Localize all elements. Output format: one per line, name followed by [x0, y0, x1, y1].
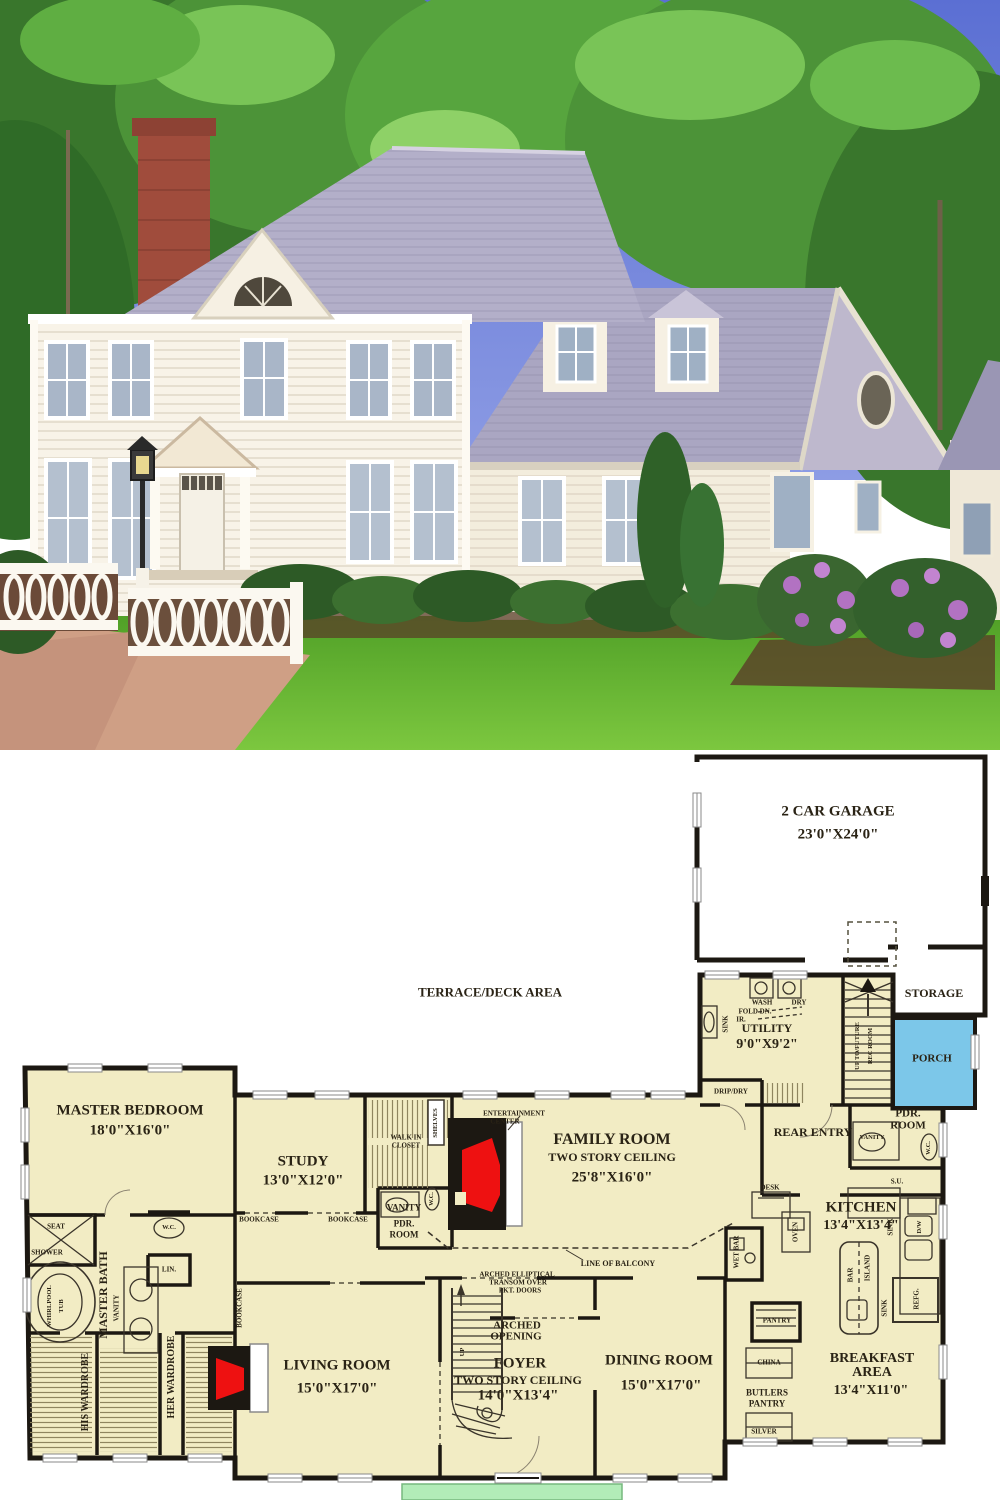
wet-bar-label: WET BAR [734, 1236, 741, 1269]
fold-dn-label: FOLD DN. [738, 1009, 771, 1016]
family-room-dims: 25'8"X16'0" [572, 1171, 653, 1186]
transom-label-1: ARCHED ELLIPTICAL [479, 1272, 554, 1279]
gable-oval-window [859, 373, 893, 427]
entertainment-label: ENTERTAINMENT [483, 1111, 545, 1118]
kitchen-sink-label: SINK [888, 1218, 895, 1235]
pdr-room-label-2: ROOM [390, 1231, 419, 1240]
dining-room-dims: 15'0"X17'0" [621, 1379, 702, 1394]
storage-label: STORAGE [905, 987, 963, 999]
window [772, 474, 812, 550]
utility-sink-label: SINK [723, 1015, 730, 1032]
whirlpool-label: WHIRLPOOL [47, 1285, 54, 1327]
entertainment-center-label: CENTER [490, 1119, 519, 1126]
house-photo [0, 0, 1000, 750]
breakfast-dims: 13'4"X11'0" [834, 1384, 909, 1398]
foyer-dims: 14'0"X13'4" [478, 1389, 559, 1404]
transom-label-3: PKT. DOORS [499, 1288, 541, 1295]
terrace-label: TERRACE/DECK AREA [418, 986, 562, 999]
his-wardrobe-label: HIS WARDROBE [81, 1353, 91, 1431]
house-photo-drawing [0, 0, 1000, 750]
garage-label: 2 CAR GARAGE [781, 805, 894, 820]
silver-label: SILVER [751, 1429, 776, 1436]
window [856, 482, 880, 532]
su-label: S.U. [891, 1179, 903, 1186]
seat-label: SEAT [47, 1224, 65, 1231]
bookcase-label: BOOKCASE [328, 1217, 368, 1224]
linen-label: LIN. [162, 1267, 176, 1274]
study-label: STUDY [278, 1155, 329, 1170]
utility-dims: 9'0"X9'2" [736, 1038, 797, 1052]
island-sink-label: SINK [882, 1299, 889, 1316]
front-stoop [402, 1484, 622, 1500]
garage-side-door [981, 876, 989, 906]
up-to-future-label: UP TO/FUTURE [855, 1022, 862, 1070]
pdr-right-label-2: ROOM [890, 1121, 925, 1132]
rear-entry-label: REAR ENTRY [774, 1126, 853, 1138]
pdr-wc-label: W.C. [429, 1192, 436, 1206]
kitchen-label: KITCHEN [826, 1201, 897, 1216]
master-bedroom-label: MASTER BEDROOM [56, 1104, 203, 1119]
china-label: CHINA [757, 1360, 780, 1367]
dining-room-label: DINING ROOM [605, 1354, 713, 1369]
pantry-label: PANTRY [763, 1318, 791, 1325]
dry-label: DRY [792, 1000, 807, 1007]
bookcase-label: BOOKCASE [237, 1288, 244, 1328]
bar-label: BAR [848, 1268, 855, 1283]
pin-image: 2 CAR GARAGE 23'0"X24'0" TERRACE/DECK AR… [0, 0, 1000, 1500]
breakfast-label-1: BREAKFAST [830, 1352, 915, 1366]
family-room-label: FAMILY ROOM [553, 1132, 670, 1148]
pdr-right-label-1: PDR. [895, 1109, 920, 1120]
transom-label-2: TRANSOM OVER [489, 1280, 547, 1287]
fence-post [290, 582, 303, 664]
dw-label: D/W [917, 1221, 924, 1234]
mb-wc-label: W.C. [162, 1225, 176, 1232]
desk-label: DESK [760, 1185, 779, 1192]
study-dims: 13'0"X12'0" [263, 1174, 344, 1189]
oven-label: OVEN [793, 1222, 800, 1242]
wash-label: WASH [752, 1000, 773, 1007]
garage-dims: 23'0"X24'0" [798, 828, 879, 843]
front-door-plan [495, 1473, 541, 1483]
foyer-label: FOYER [494, 1357, 547, 1372]
pdr-vanity-label: VANITY [387, 1204, 421, 1213]
bookcase-label: BOOKCASE [239, 1217, 279, 1224]
master-bath-label: MASTER BATH [97, 1251, 109, 1338]
living-room-label: LIVING ROOM [283, 1359, 390, 1374]
pdr-right-vanity-label: VANITY [860, 1135, 885, 1142]
arched-opening-label-2: OPENING [490, 1332, 541, 1343]
living-room-fireplace [208, 1344, 268, 1412]
up-label: UP [460, 1348, 467, 1357]
window [962, 502, 992, 556]
balcony-label: LINE OF BALCONY [581, 1260, 655, 1268]
front-step [146, 570, 258, 580]
floor-plan: 2 CAR GARAGE 23'0"X24'0" TERRACE/DECK AR… [0, 750, 1000, 1500]
butlers-pantry-label: PANTRY [749, 1400, 786, 1409]
porch-label: PORCH [912, 1054, 952, 1065]
shelves-label: SHELVES [433, 1108, 440, 1137]
butlers-label: BUTLERS [746, 1389, 788, 1398]
utility-label: UTILITY [742, 1022, 793, 1034]
mb-vanity-label: VANITY [114, 1295, 121, 1322]
foyer-note: TWO STORY CEILING [454, 1374, 582, 1386]
pdr-room-label-1: PDR. [394, 1220, 415, 1229]
island-label: ISLAND [865, 1255, 872, 1281]
refg-label: REFG. [914, 1288, 921, 1309]
pdr-right-wc-label: W.C. [926, 1141, 933, 1155]
tub-label: TUB [59, 1299, 66, 1312]
drip-dry-label: DRIP/DRY [714, 1089, 748, 1096]
family-room-fireplace [448, 1118, 522, 1230]
breakfast-label-2: AREA [852, 1366, 892, 1380]
shower-label: SHOWER [31, 1250, 63, 1257]
closet-label: CLOSET [392, 1143, 420, 1150]
master-bedroom-dims: 18'0"X16'0" [90, 1124, 171, 1139]
her-wardrobe-label: HER WARDROBE [167, 1336, 177, 1419]
rec-room-label: REC ROOM [868, 1028, 875, 1064]
family-room-note: TWO STORY CEILING [548, 1151, 676, 1163]
living-room-dims: 15'0"X17'0" [297, 1382, 378, 1397]
walk-in-label: WALK IN [391, 1135, 422, 1142]
